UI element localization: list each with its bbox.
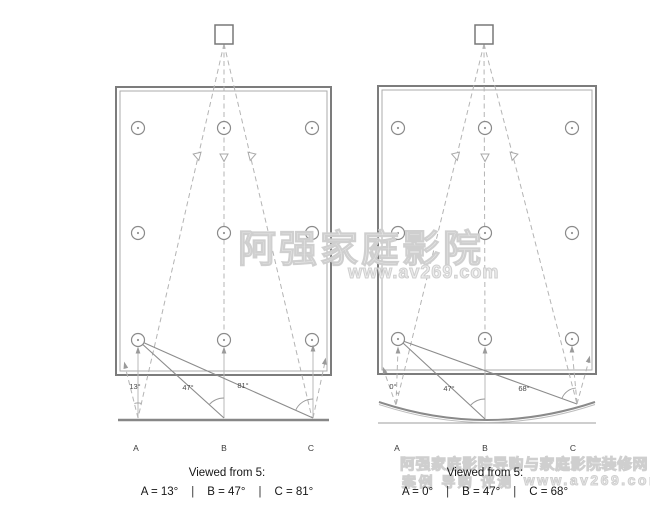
curved-angle-b-label: 47° (443, 384, 454, 393)
source-box (215, 25, 233, 44)
flat-angle-a-label: 13° (129, 382, 140, 391)
curved-value-a: A = 0° (402, 486, 433, 498)
curved-value-b: B = 47° (462, 486, 500, 498)
diagram-canvas: 阿强家庭影院 www.av269.com 阿强家庭影院导购与家庭影院装修网 案例… (0, 0, 650, 513)
angle-arcs (396, 388, 576, 405)
flat-position-b-label: B (221, 443, 227, 453)
curved-caption-title: Viewed from 5: (447, 467, 524, 479)
flat-position-c-label: C (308, 443, 314, 453)
flat-caption-values: A = 13° | B = 47° | C = 81° (141, 486, 314, 498)
flat-position-a-label: A (133, 443, 139, 453)
flat-angle-b-label: 47° (182, 383, 193, 392)
separator: | (446, 486, 449, 498)
flat-angle-c-label: 81° (237, 381, 248, 390)
flat-screen-diagram (116, 25, 331, 420)
flat-caption-title: Viewed from 5: (189, 467, 266, 479)
curved-screen-diagram (378, 25, 596, 423)
curved-position-c-label: C (570, 443, 576, 453)
curved-position-a-label: A (394, 443, 400, 453)
curved-angle-a-label: 0° (389, 382, 396, 391)
separator: | (513, 486, 516, 498)
source-box (475, 25, 493, 44)
flat-value-a: A = 13° (141, 486, 179, 498)
line-art (0, 0, 650, 513)
curved-position-b-label: B (482, 443, 488, 453)
curved-value-c: C = 68° (529, 486, 568, 498)
curved-caption-values: A = 0° | B = 47° | C = 68° (402, 486, 568, 498)
curved-angle-c-label: 68° (518, 384, 529, 393)
separator: | (191, 486, 194, 498)
flat-value-b: B = 47° (207, 486, 245, 498)
separator: | (258, 486, 261, 498)
flat-value-c: C = 81° (274, 486, 313, 498)
curved-screen-line (379, 402, 595, 420)
